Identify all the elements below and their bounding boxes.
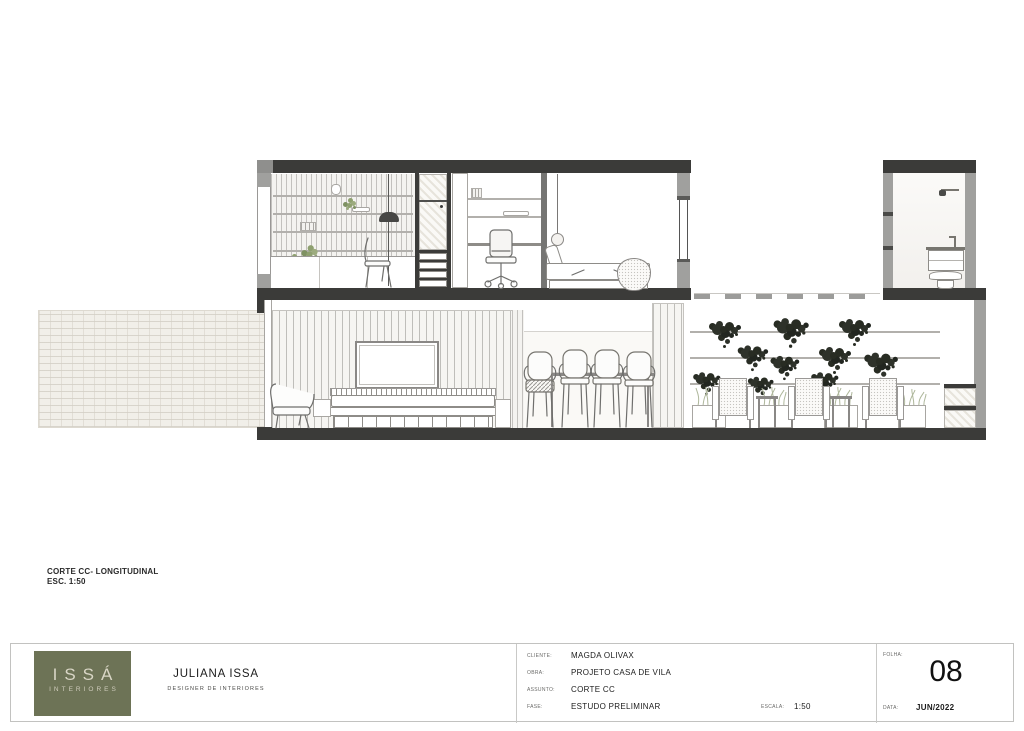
closet-drawer-4 xyxy=(419,280,447,287)
library-shelf-1 xyxy=(273,195,413,197)
office-books xyxy=(471,188,482,198)
field-label-fase: FASE: xyxy=(527,704,543,710)
closet-drawer-3 xyxy=(419,271,447,278)
ivy-plant xyxy=(786,324,794,332)
field-label-cliente: CLIENTE: xyxy=(527,653,552,659)
sofa-seat xyxy=(329,407,497,416)
date-label: DATA: xyxy=(883,705,898,711)
ivy-plant xyxy=(748,350,755,357)
library-books xyxy=(300,222,316,231)
ground-slab xyxy=(257,427,986,440)
logo-subtitle: INTERIORES xyxy=(34,686,131,693)
office-shelf-2 xyxy=(468,216,542,218)
scale-label: ESCALA: xyxy=(761,704,784,710)
dining-chair-4 xyxy=(620,350,658,428)
logo-name: ISSÁ xyxy=(34,665,131,685)
field-label-obra: OBRA: xyxy=(527,670,544,676)
patio-side-table xyxy=(830,396,852,428)
lamp-cord xyxy=(388,174,389,212)
patio-side-table xyxy=(756,396,778,428)
field-value-assunto: CORTE CC xyxy=(571,685,615,694)
living-ceiling-band xyxy=(272,300,512,311)
tv-screen xyxy=(355,341,439,389)
hatch-cabinet-upper xyxy=(944,388,976,406)
sofa-back xyxy=(331,395,495,407)
office-tray xyxy=(503,211,529,216)
scale-value: 1:50 xyxy=(794,702,811,711)
drawing-sheet: CORTE CC- LONGITUDINAL ESC. 1:50 ISSÁ IN… xyxy=(0,0,1024,731)
garden-shelf-2 xyxy=(690,357,940,359)
field-value-fase: ESTUDO PRELIMINAR xyxy=(571,702,661,711)
roof-corner-block xyxy=(257,160,273,174)
field-value-cliente: MAGDA OLIVAX xyxy=(571,651,634,660)
ivy-plant xyxy=(850,324,857,331)
sheet-number-value: 08 xyxy=(891,655,1001,689)
library-tray xyxy=(352,207,370,212)
office-shelf-1 xyxy=(468,198,542,200)
drawing-caption: CORTE CC- LONGITUDINAL ESC. 1:50 xyxy=(47,567,159,587)
shower-head xyxy=(939,190,946,196)
pergola-beams xyxy=(694,293,880,299)
main-right-wall-top xyxy=(677,173,690,197)
toilet-base xyxy=(937,280,954,289)
neighbor-wall-hatch xyxy=(38,310,265,428)
closet-knob xyxy=(440,205,443,208)
sofa-pleated-base xyxy=(333,416,493,428)
left-facade-cap-top xyxy=(257,173,271,187)
drawing-scale: ESC. 1:50 xyxy=(47,577,159,587)
section-drawing xyxy=(0,0,1024,640)
cabinet-divider-1 xyxy=(319,257,320,288)
left-facade-cap-bottom xyxy=(257,274,271,288)
office-tall-cabinet xyxy=(452,173,468,288)
drawing-title: CORTE CC- LONGITUDINAL xyxy=(47,567,159,577)
title-block-divider xyxy=(516,644,517,723)
bathroom-right-wall xyxy=(965,173,976,288)
living-armchair xyxy=(268,381,316,429)
dining-chair-1 xyxy=(521,350,559,428)
ivy-plant xyxy=(876,358,883,365)
bathroom-wall-tick-1 xyxy=(883,212,893,216)
left-facade-window xyxy=(257,173,271,288)
sink-faucet-spout xyxy=(949,236,956,238)
patio-chair xyxy=(710,376,756,428)
patio-chair xyxy=(860,376,906,428)
office-chair xyxy=(478,228,528,290)
closet-drawer-2 xyxy=(419,262,447,269)
sink-cabinet-shelf xyxy=(929,260,963,261)
date-value: JUN/2022 xyxy=(916,703,954,712)
bathroom-left-wall xyxy=(883,173,893,288)
library-shelf-3 xyxy=(273,231,413,233)
library-chair xyxy=(352,237,398,289)
closet-drawer-1 xyxy=(419,253,447,260)
field-value-obra: PROJETO CASA DE VILA xyxy=(571,668,671,677)
bathroom-roof-slab xyxy=(883,160,976,173)
main-right-wall-bottom xyxy=(677,262,690,288)
closet-door-hatch xyxy=(419,174,447,250)
hatch-cabinet-lower xyxy=(944,410,976,428)
lamp-shade xyxy=(379,212,399,222)
author-block: JULIANA ISSA DESIGNER DE INTERIORES xyxy=(121,668,311,692)
ivy-plant xyxy=(780,360,786,366)
shelf-plant xyxy=(347,203,352,208)
bedroom-lamp-cord xyxy=(557,174,558,234)
field-label-assunto: ASSUNTO: xyxy=(527,687,555,693)
patio-chair xyxy=(786,376,832,428)
garden-shelf-1 xyxy=(690,331,940,333)
ivy-plant xyxy=(830,352,837,359)
sofa-side-block-right xyxy=(495,399,511,428)
library-vase xyxy=(331,184,341,195)
roof-slab xyxy=(257,160,691,173)
title-block: ISSÁ INTERIORES JULIANA ISSA DESIGNER DE… xyxy=(10,643,1014,722)
ivy-plant xyxy=(720,326,727,333)
closet-door-divider xyxy=(419,200,447,202)
bathroom-wall-tick-2 xyxy=(883,246,893,250)
window-tick-top xyxy=(677,196,690,200)
author-role: DESIGNER DE INTERIORES xyxy=(121,686,311,692)
main-right-window xyxy=(679,199,688,260)
logo: ISSÁ INTERIORES xyxy=(34,651,131,716)
ivy-plant xyxy=(703,377,709,383)
dining-ceiling-band xyxy=(512,300,654,332)
bed-blanket-roll xyxy=(617,258,651,291)
author-name: JULIANA ISSA xyxy=(121,668,311,680)
toilet-seat xyxy=(929,271,962,280)
title-block-divider xyxy=(876,644,877,723)
